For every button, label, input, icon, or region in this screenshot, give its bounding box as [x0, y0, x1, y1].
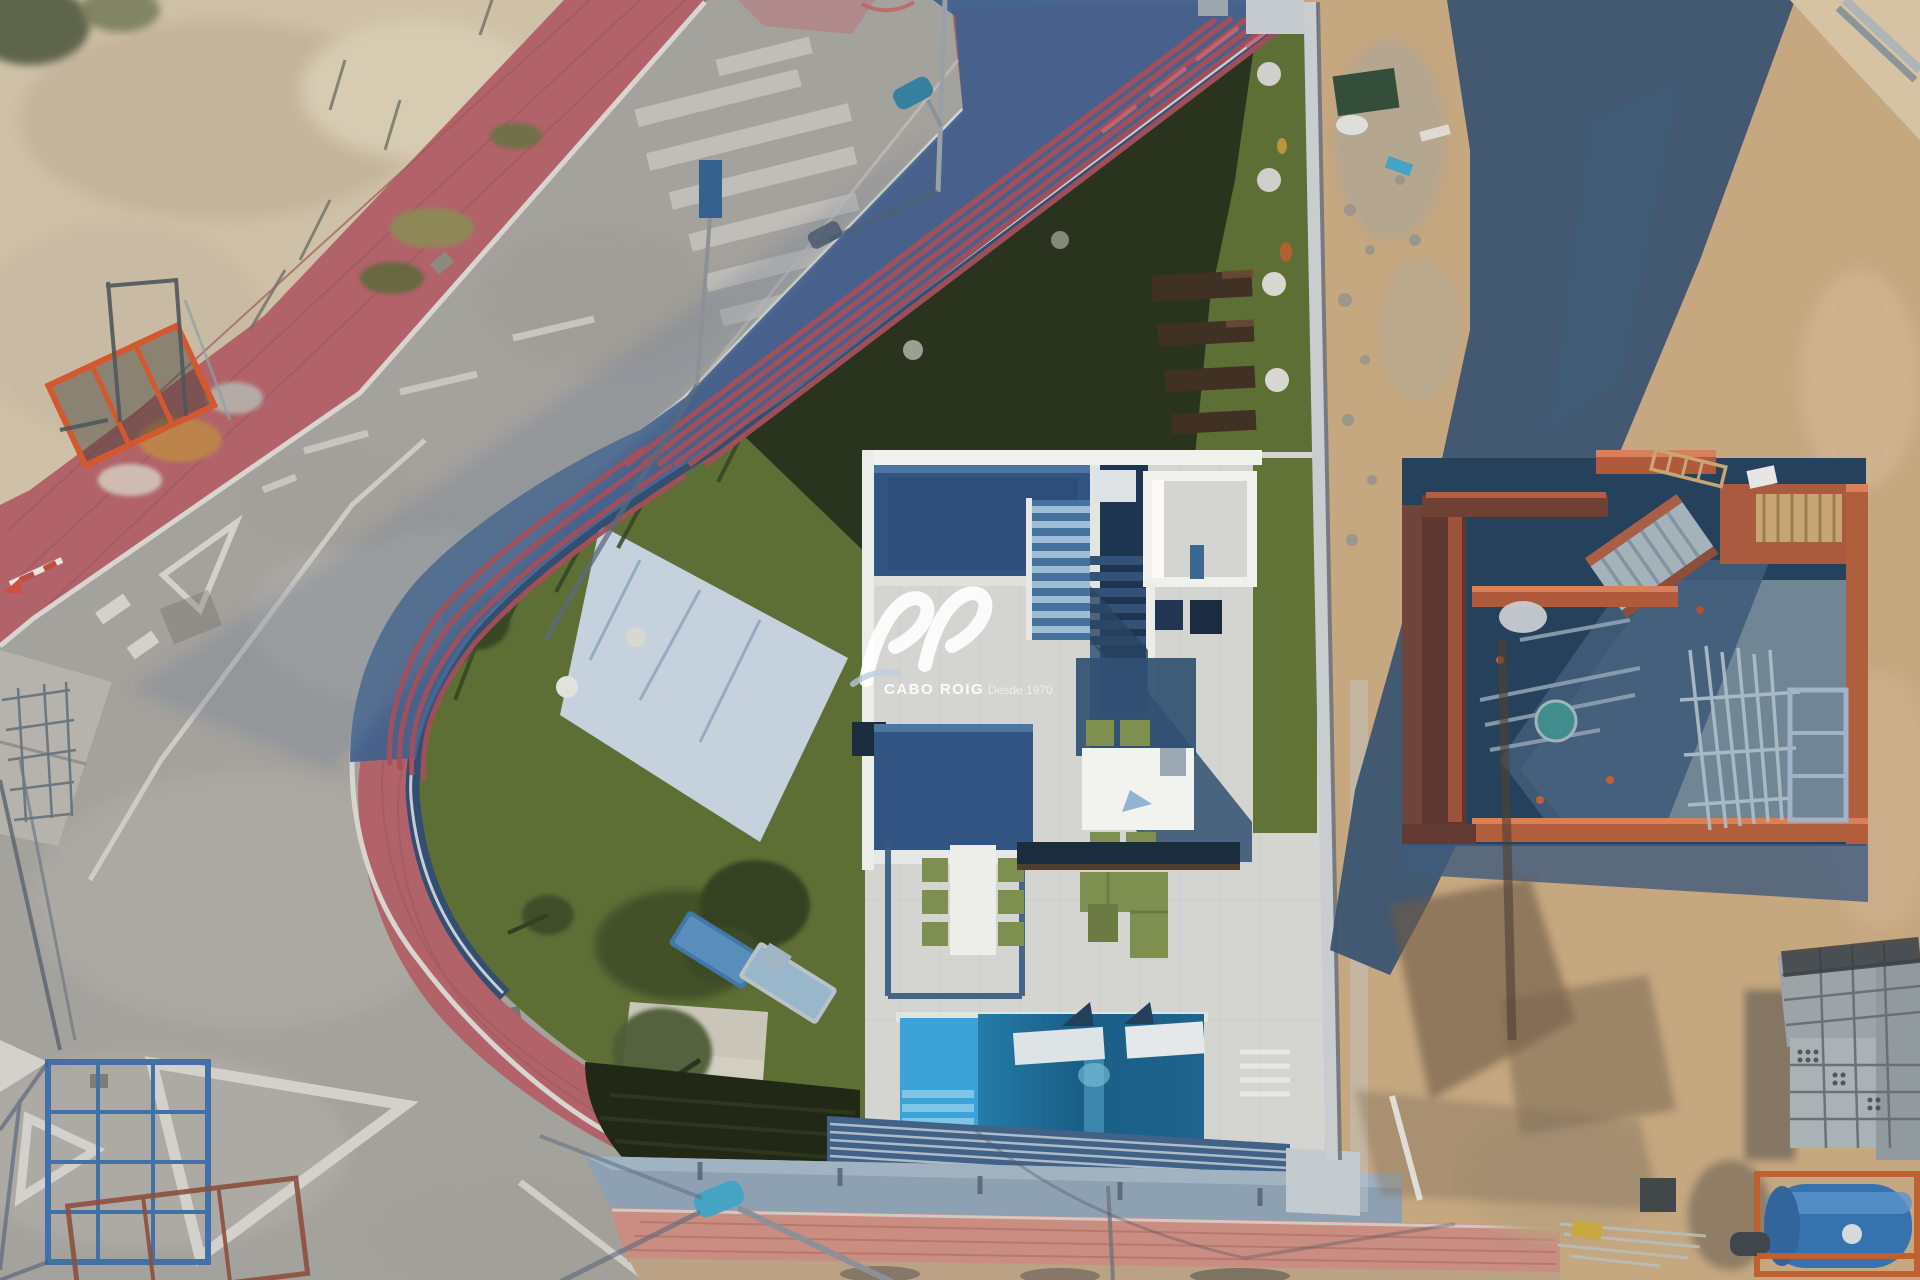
svg-text:CABO ROIG: CABO ROIG [884, 681, 984, 698]
svg-text:Desde 1970: Desde 1970 [988, 683, 1053, 697]
